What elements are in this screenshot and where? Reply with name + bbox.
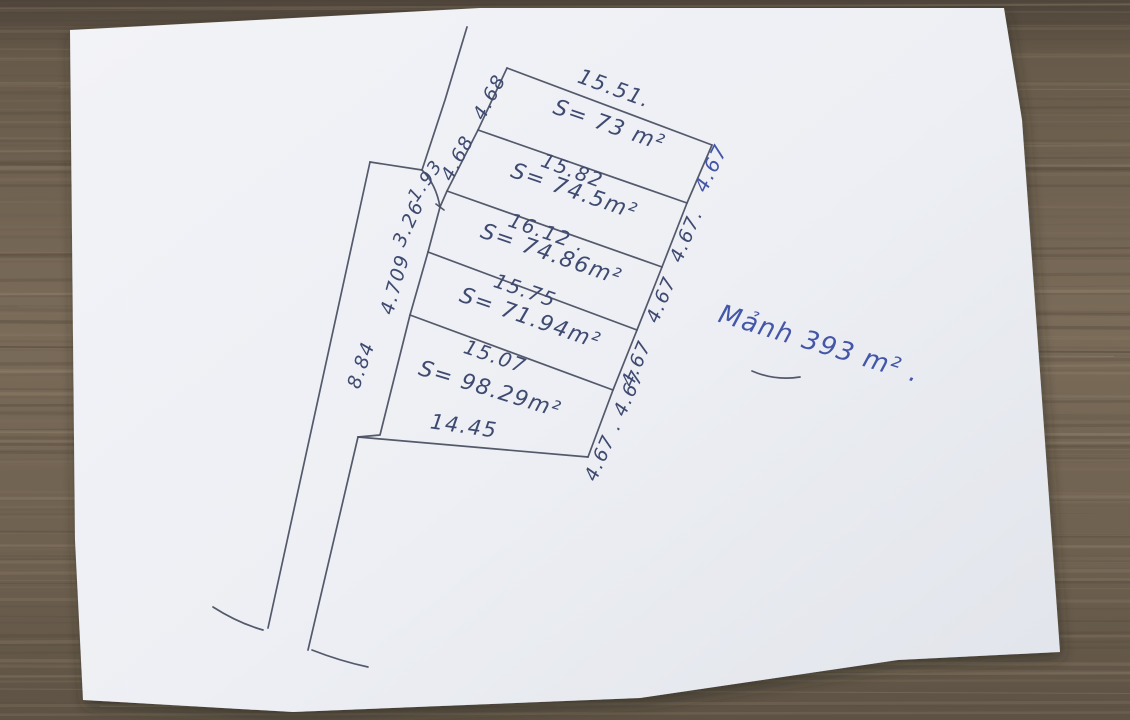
sketch-canvas: 15.51.15.8216.12 .15.7515.0714.45S= 73 m… (0, 0, 1130, 720)
photo-of-land-sketch: 15.51.15.8216.12 .15.7515.0714.45S= 73 m… (0, 0, 1130, 720)
